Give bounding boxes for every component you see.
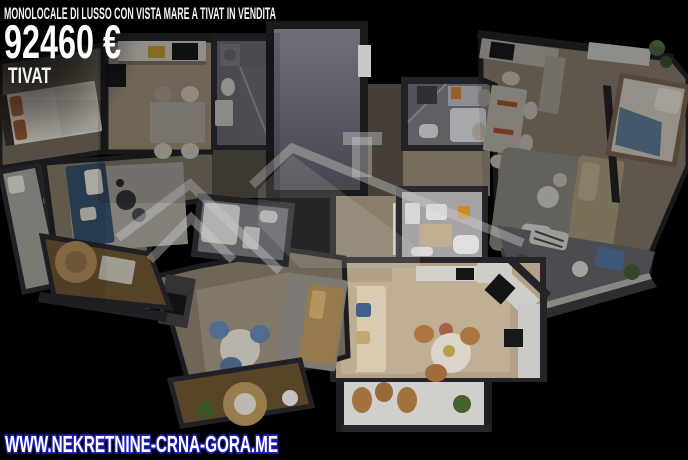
svg-text:WWW.NEKRETNINE-CRNA-GORA.ME: WWW.NEKRETNINE-CRNA-GORA.ME <box>5 431 278 457</box>
svg-text:TIVAT: TIVAT <box>8 63 51 88</box>
svg-text:92460 €: 92460 € <box>4 15 121 68</box>
